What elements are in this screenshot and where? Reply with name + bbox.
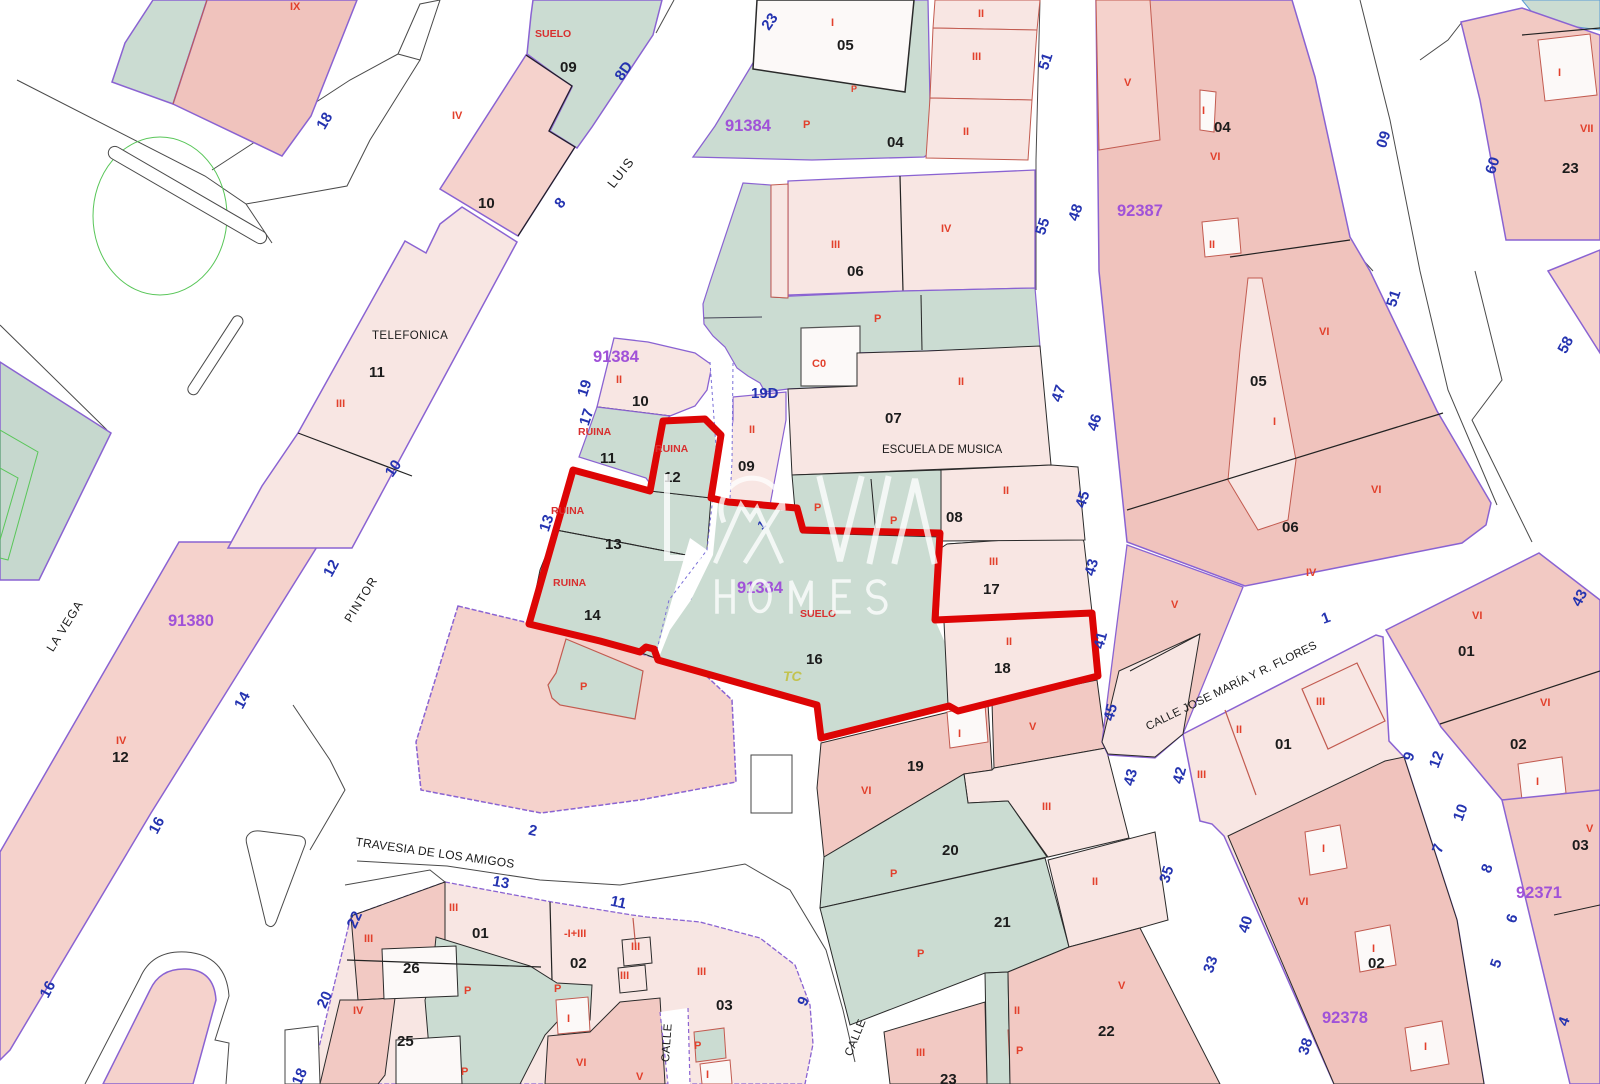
- svg-text:III: III: [972, 51, 981, 63]
- svg-text:SUELO: SUELO: [800, 608, 836, 620]
- svg-text:III: III: [620, 970, 629, 982]
- svg-text:RUINA: RUINA: [655, 443, 689, 455]
- svg-text:P: P: [851, 84, 857, 94]
- svg-text:IV: IV: [941, 223, 952, 235]
- svg-text:P: P: [464, 985, 471, 997]
- svg-text:ESCUELA DE MUSICA: ESCUELA DE MUSICA: [882, 444, 1002, 456]
- svg-text:25: 25: [397, 1033, 414, 1050]
- svg-text:III: III: [449, 902, 458, 914]
- svg-text:03: 03: [716, 997, 733, 1014]
- svg-text:04: 04: [1214, 119, 1231, 136]
- svg-text:III: III: [336, 398, 345, 410]
- svg-text:VI: VI: [1371, 484, 1381, 496]
- svg-text:VI: VI: [861, 785, 871, 797]
- svg-text:I: I: [1372, 943, 1375, 955]
- svg-text:I: I: [1202, 105, 1205, 117]
- svg-text:16: 16: [806, 651, 823, 668]
- svg-text:P: P: [554, 983, 561, 995]
- svg-text:I: I: [1536, 776, 1539, 788]
- svg-text:08: 08: [946, 509, 963, 526]
- svg-text:P: P: [694, 1040, 701, 1052]
- svg-text:I: I: [1424, 1041, 1427, 1053]
- svg-text:01: 01: [1275, 736, 1292, 753]
- svg-text:IV: IV: [116, 735, 127, 747]
- svg-text:IV: IV: [1306, 567, 1317, 579]
- svg-text:02: 02: [1510, 736, 1527, 753]
- svg-text:II: II: [749, 424, 755, 436]
- svg-text:II: II: [978, 8, 984, 20]
- svg-text:P: P: [580, 681, 587, 693]
- svg-text:VI: VI: [1210, 151, 1220, 163]
- svg-text:III: III: [1316, 696, 1325, 708]
- svg-text:III: III: [989, 556, 998, 568]
- svg-text:10: 10: [478, 195, 495, 212]
- svg-text:18: 18: [994, 660, 1011, 677]
- svg-text:V: V: [1586, 823, 1594, 835]
- svg-text:P: P: [814, 502, 821, 514]
- svg-text:P: P: [803, 119, 810, 131]
- svg-text:III: III: [364, 933, 373, 945]
- svg-text:SUELO: SUELO: [535, 28, 571, 40]
- svg-text:02: 02: [1368, 955, 1385, 972]
- svg-text:06: 06: [1282, 519, 1299, 536]
- svg-text:91384: 91384: [725, 117, 772, 135]
- svg-text:IV: IV: [353, 1005, 364, 1017]
- svg-text:V: V: [636, 1071, 644, 1083]
- svg-text:P: P: [917, 948, 924, 960]
- svg-text:05: 05: [1250, 373, 1267, 390]
- svg-text:-I+III: -I+III: [564, 928, 586, 940]
- svg-text:II: II: [616, 374, 622, 386]
- svg-text:IV: IV: [452, 110, 463, 122]
- svg-text:20: 20: [942, 842, 959, 859]
- svg-text:P: P: [461, 1066, 468, 1078]
- svg-text:II: II: [1003, 485, 1009, 497]
- svg-text:22: 22: [1098, 1023, 1115, 1040]
- svg-text:13: 13: [605, 536, 622, 553]
- svg-text:VI: VI: [1472, 610, 1482, 622]
- svg-text:II: II: [1006, 636, 1012, 648]
- svg-text:09: 09: [560, 59, 577, 76]
- svg-text:06: 06: [847, 263, 864, 280]
- svg-text:23: 23: [1562, 160, 1579, 177]
- svg-text:C0: C0: [812, 358, 826, 370]
- svg-text:VI: VI: [576, 1057, 586, 1069]
- svg-text:14: 14: [584, 607, 601, 624]
- svg-text:IX: IX: [290, 1, 301, 13]
- svg-text:17: 17: [983, 581, 1000, 598]
- svg-text:92371: 92371: [1516, 884, 1562, 902]
- svg-text:23: 23: [940, 1071, 957, 1084]
- svg-text:TC: TC: [783, 668, 803, 684]
- svg-text:II: II: [1014, 1005, 1020, 1017]
- svg-text:P: P: [890, 515, 897, 527]
- svg-text:VI: VI: [1540, 697, 1550, 709]
- svg-text:12: 12: [112, 749, 129, 766]
- svg-text:III: III: [1197, 769, 1206, 781]
- svg-text:05: 05: [837, 37, 854, 54]
- svg-text:II: II: [1209, 239, 1215, 251]
- svg-text:VI: VI: [1298, 896, 1308, 908]
- svg-text:01: 01: [1458, 643, 1475, 660]
- svg-text:III: III: [831, 239, 840, 251]
- svg-text:21: 21: [994, 914, 1011, 931]
- svg-text:VII: VII: [1580, 123, 1593, 135]
- svg-text:11: 11: [600, 450, 616, 467]
- svg-text:TELEFONICA: TELEFONICA: [372, 330, 448, 342]
- svg-text:P: P: [1016, 1045, 1023, 1057]
- svg-text:13: 13: [491, 873, 510, 893]
- svg-text:10: 10: [632, 393, 649, 410]
- svg-text:RUINA: RUINA: [551, 505, 585, 517]
- svg-text:II: II: [1092, 876, 1098, 888]
- svg-text:III: III: [697, 966, 706, 978]
- svg-text:I: I: [567, 1013, 570, 1025]
- svg-text:P: P: [874, 313, 881, 325]
- svg-text:07: 07: [885, 410, 902, 427]
- svg-text:92387: 92387: [1117, 202, 1163, 220]
- svg-text:III: III: [631, 941, 640, 953]
- svg-text:I: I: [958, 728, 961, 740]
- svg-text:II: II: [1236, 724, 1242, 736]
- svg-text:91384: 91384: [593, 348, 640, 366]
- svg-text:RUINA: RUINA: [578, 426, 612, 438]
- svg-text:03: 03: [1572, 837, 1589, 854]
- svg-text:II: II: [963, 126, 969, 138]
- svg-text:I: I: [1322, 843, 1325, 855]
- svg-text:V: V: [1118, 980, 1126, 992]
- svg-text:III: III: [1042, 801, 1051, 813]
- svg-text:I: I: [1558, 67, 1561, 79]
- svg-text:RUINA: RUINA: [553, 577, 587, 589]
- svg-text:V: V: [1124, 77, 1132, 89]
- svg-text:11: 11: [369, 364, 385, 381]
- svg-text:II: II: [958, 376, 964, 388]
- svg-text:91380: 91380: [168, 612, 214, 630]
- svg-text:P: P: [890, 868, 897, 880]
- svg-text:I: I: [831, 17, 834, 29]
- svg-text:01: 01: [472, 925, 489, 942]
- svg-text:VI: VI: [1319, 326, 1329, 338]
- svg-text:02: 02: [570, 955, 587, 972]
- svg-text:04: 04: [887, 134, 904, 151]
- svg-text:09: 09: [738, 458, 755, 475]
- svg-text:92378: 92378: [1322, 1009, 1368, 1027]
- svg-text:I: I: [706, 1069, 709, 1081]
- svg-text:V: V: [1029, 721, 1037, 733]
- svg-text:19D: 19D: [751, 385, 779, 402]
- svg-text:26: 26: [403, 960, 420, 977]
- svg-text:I: I: [1273, 416, 1276, 428]
- svg-text:V: V: [1171, 599, 1179, 611]
- svg-text:III: III: [916, 1047, 925, 1059]
- svg-text:19: 19: [907, 758, 924, 775]
